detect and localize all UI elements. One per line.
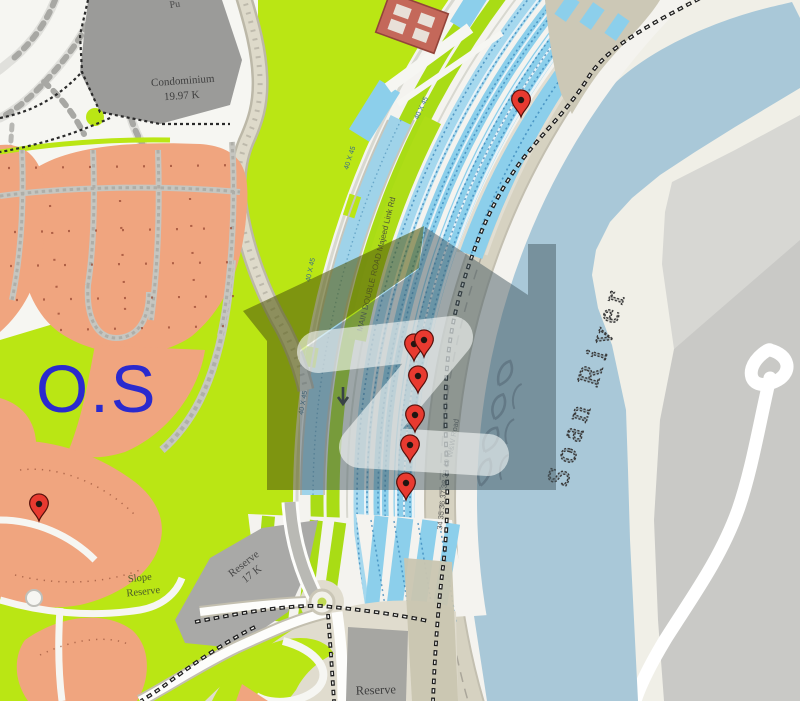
svg-text:Pu: Pu (169, 0, 181, 11)
svg-text:O.S: O.S (36, 352, 157, 427)
svg-text:19.97 K: 19.97 K (164, 89, 200, 103)
svg-text:Reserve: Reserve (355, 682, 396, 697)
